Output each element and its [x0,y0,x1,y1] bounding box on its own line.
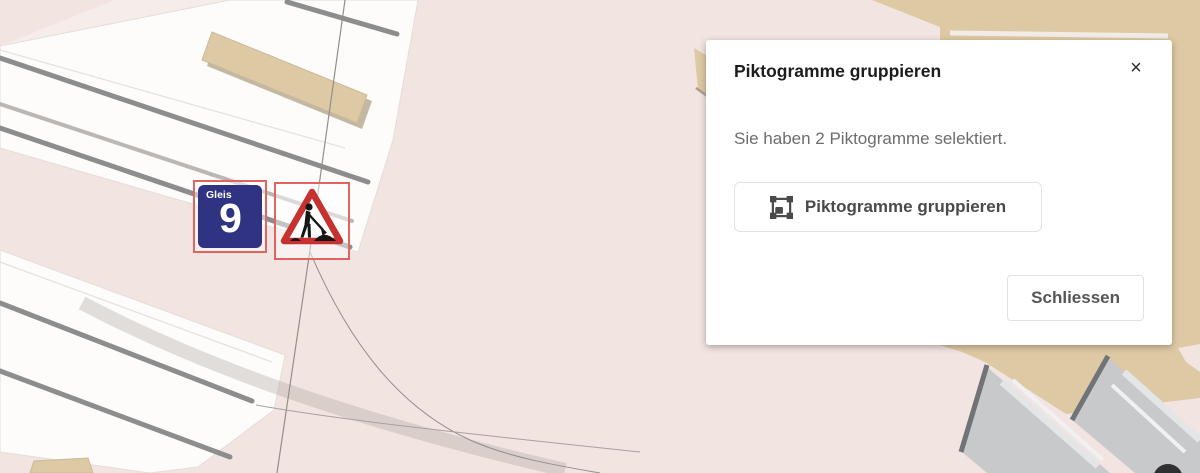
selection-message: Sie haben 2 Piktogramme selektiert. [734,128,1144,149]
track-number-sign: Gleis 9 [198,185,262,248]
building-small [30,458,93,473]
group-pictograms-button[interactable]: Piktogramme gruppieren [734,182,1042,232]
group-objects-icon [770,196,793,219]
schliessen-button[interactable]: Schliessen [1007,275,1144,321]
map-canvas[interactable]: Gleis 9 Piktogramme gruppieren × Sie hab… [0,0,1200,473]
dialog-footer: Schliessen [734,275,1144,321]
group-pictograms-dialog: Piktogramme gruppieren × Sie haben 2 Pik… [706,40,1172,345]
construction-warning-icon [279,187,345,250]
dialog-title: Piktogramme gruppieren [734,61,1144,82]
track-sign-number: 9 [198,198,262,239]
building-edge-highlight [950,33,1168,36]
close-icon[interactable]: × [1124,56,1148,80]
pictogram-construction[interactable] [274,182,350,260]
pictogram-track-9[interactable]: Gleis 9 [193,180,267,253]
group-pictograms-button-label: Piktogramme gruppieren [805,197,1006,217]
